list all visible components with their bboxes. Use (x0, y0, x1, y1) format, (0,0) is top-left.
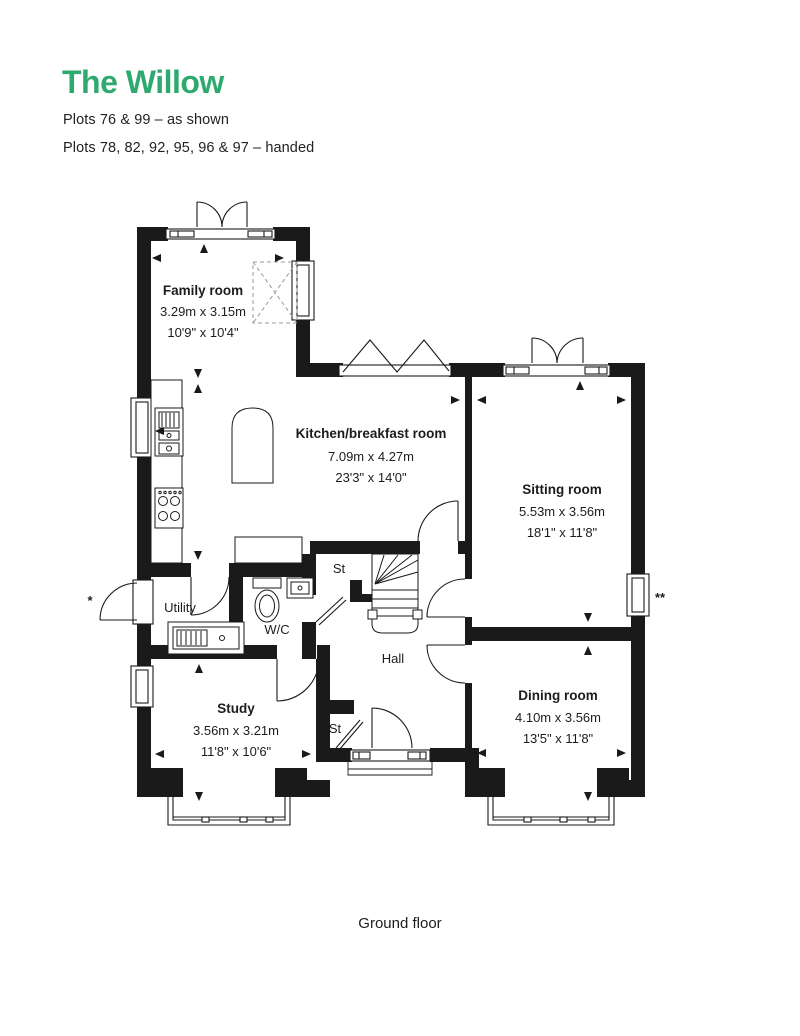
rooflight-dashed-box (253, 262, 297, 323)
kitchen-hob (155, 488, 183, 528)
kitchen-counter (151, 380, 182, 563)
family-french-doors (166, 202, 275, 239)
family-room-imperial: 10'9" x 10'4" (167, 325, 239, 340)
study-metric: 3.56m x 3.21m (193, 723, 279, 738)
sitting-room-name: Sitting room (522, 482, 602, 497)
double-asterisk-window (627, 574, 649, 616)
kitchen-metric: 7.09m x 4.27m (328, 449, 414, 464)
family-room-metric: 3.29m x 3.15m (160, 304, 246, 319)
floor-caption: Ground floor (0, 915, 800, 932)
study-window (131, 666, 153, 707)
utility-fixtures (168, 622, 244, 654)
sitting-room-imperial: 18'1" x 11'8" (527, 525, 598, 540)
study-name: Study (217, 701, 255, 716)
page-title: The Willow (62, 64, 224, 101)
wc-toilet (253, 578, 281, 622)
front-door-canopy (348, 762, 432, 775)
dining-room-imperial: 13'5" x 11'8" (523, 731, 594, 746)
utility-external-door (100, 580, 153, 624)
family-room-window (292, 261, 314, 320)
kitchen-window (131, 398, 153, 457)
plots-line-1: Plots 76 & 99 – as shown (63, 112, 229, 128)
asterisk-note: * (87, 593, 93, 608)
store-hall-label: St (329, 721, 342, 736)
study-imperial: 11'8" x 10'6" (201, 744, 272, 759)
sitting-french-doors (503, 338, 610, 376)
family-room-name: Family room (163, 283, 243, 298)
wc-basin (287, 578, 313, 598)
kitchen-imperial: 23'3" x 14'0" (335, 470, 407, 485)
kitchen-hall-door (418, 501, 458, 541)
store-understairs-label: St (333, 561, 346, 576)
bay-window-dining (488, 797, 614, 825)
wc-fixtures (253, 578, 313, 622)
kitchen-name: Kitchen/breakfast room (296, 426, 447, 441)
dining-room-name: Dining room (518, 688, 598, 703)
dining-room-door (427, 645, 465, 683)
floorplan-page: The Willow Plots 76 & 99 – as shown Plot… (0, 0, 800, 1036)
kitchen-bifold-doors (339, 340, 451, 376)
stairs (368, 554, 422, 633)
kitchen-fixtures (151, 380, 302, 563)
front-door (350, 708, 430, 761)
double-asterisk-note: ** (655, 590, 666, 605)
study-door (277, 659, 319, 701)
dining-room-metric: 4.10m x 3.56m (515, 710, 601, 725)
plots-line-2: Plots 78, 82, 92, 95, 96 & 97 – handed (63, 140, 314, 156)
wc-label: W/C (264, 622, 289, 637)
bay-window-study (168, 797, 290, 825)
sitting-room-metric: 5.53m x 3.56m (519, 504, 605, 519)
kitchen-island (232, 408, 273, 483)
hall-label: Hall (382, 651, 405, 666)
utility-label: Utility (164, 600, 196, 615)
sitting-room-door (427, 579, 465, 617)
wc-door (316, 597, 346, 625)
utility-door (191, 577, 229, 615)
kitchen-worktop (235, 537, 302, 563)
